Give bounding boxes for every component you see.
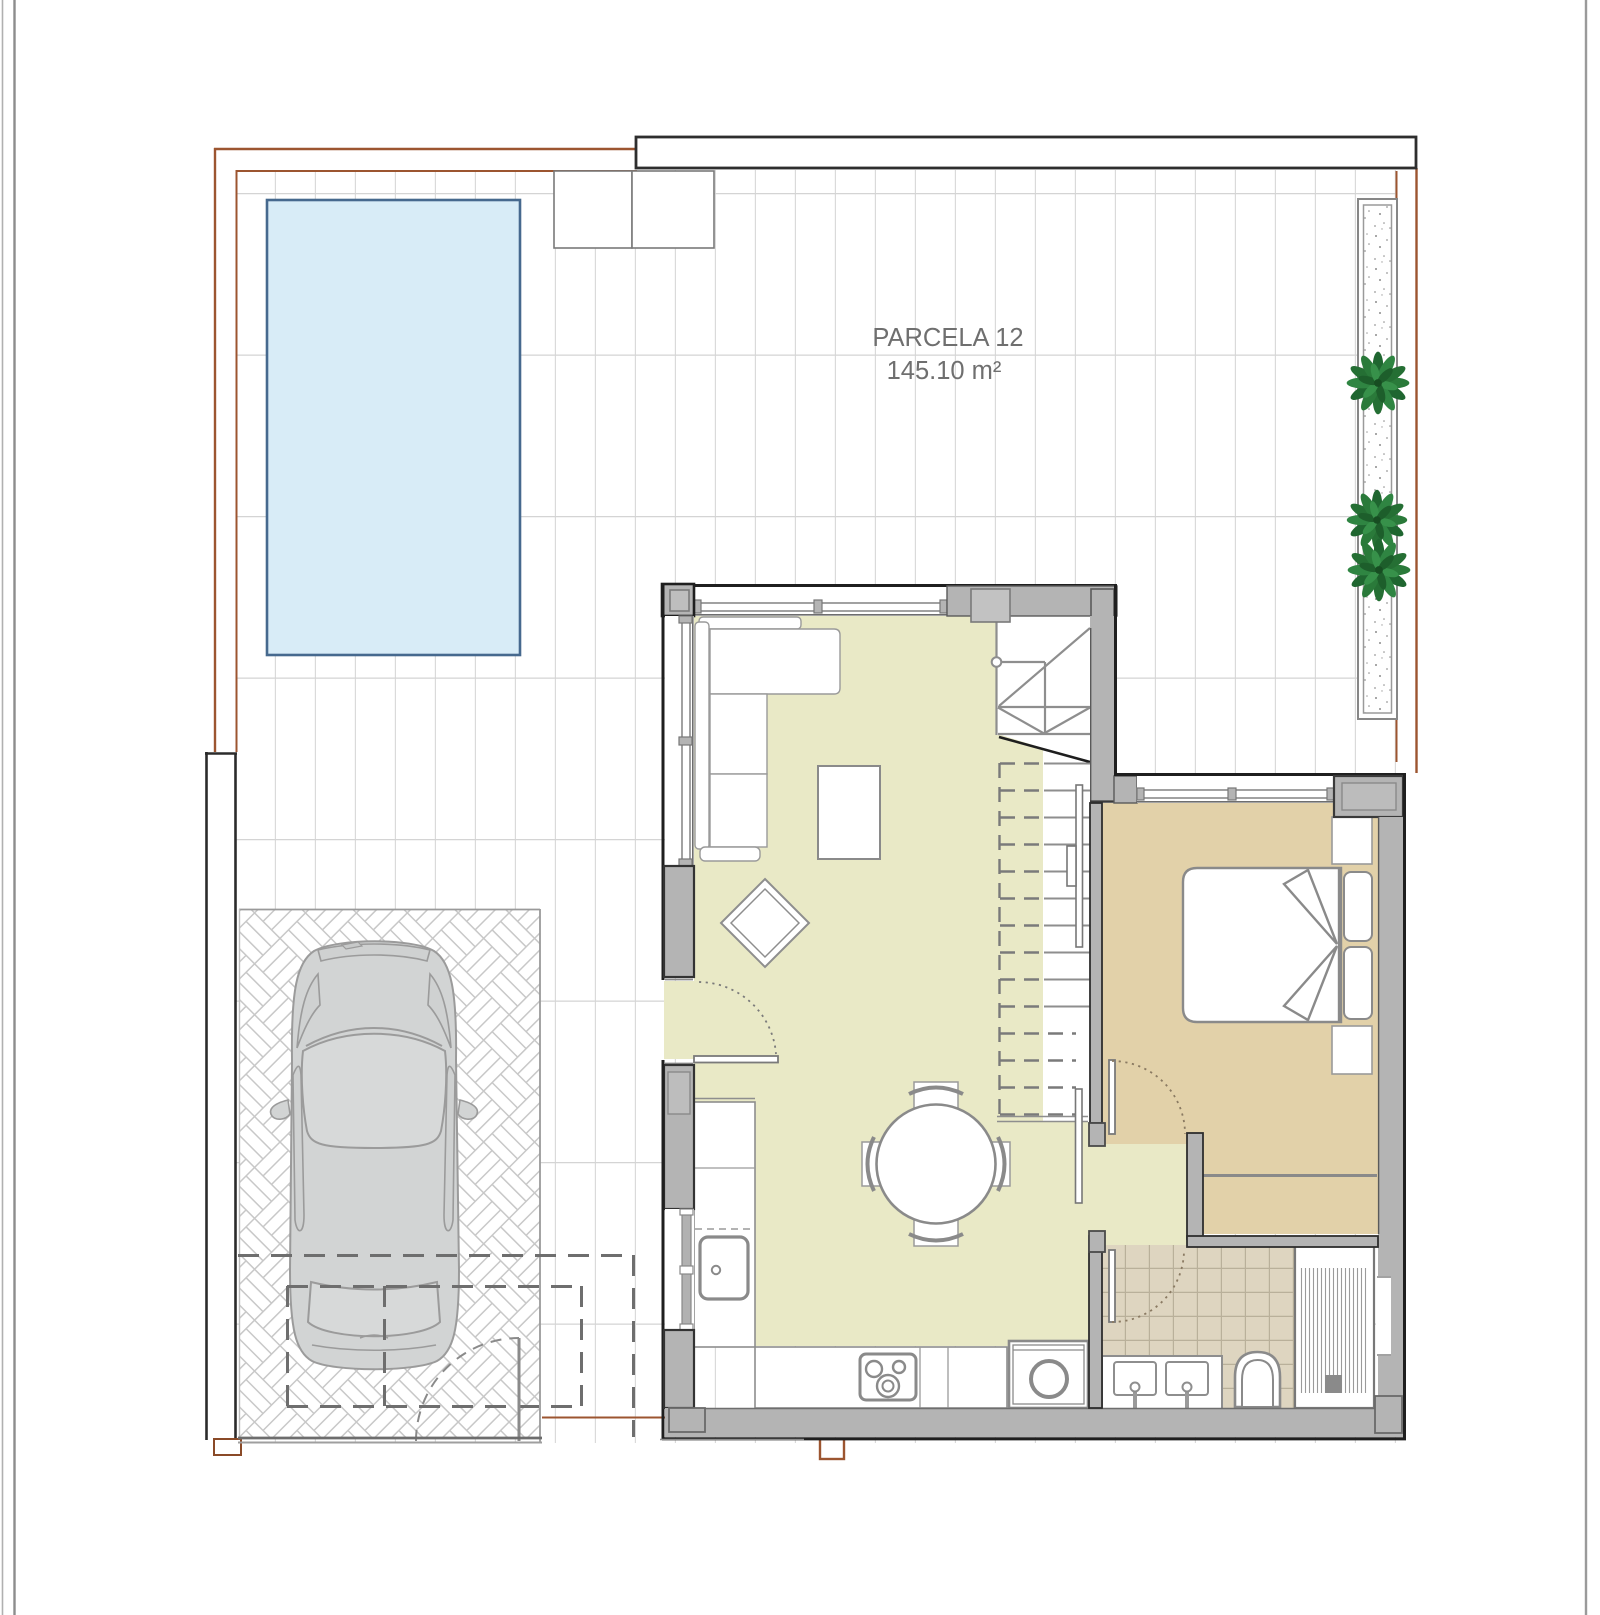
svg-text:PARCELA 12: PARCELA 12 [872,324,1023,352]
svg-text:145.10 m²: 145.10 m² [887,357,1002,385]
